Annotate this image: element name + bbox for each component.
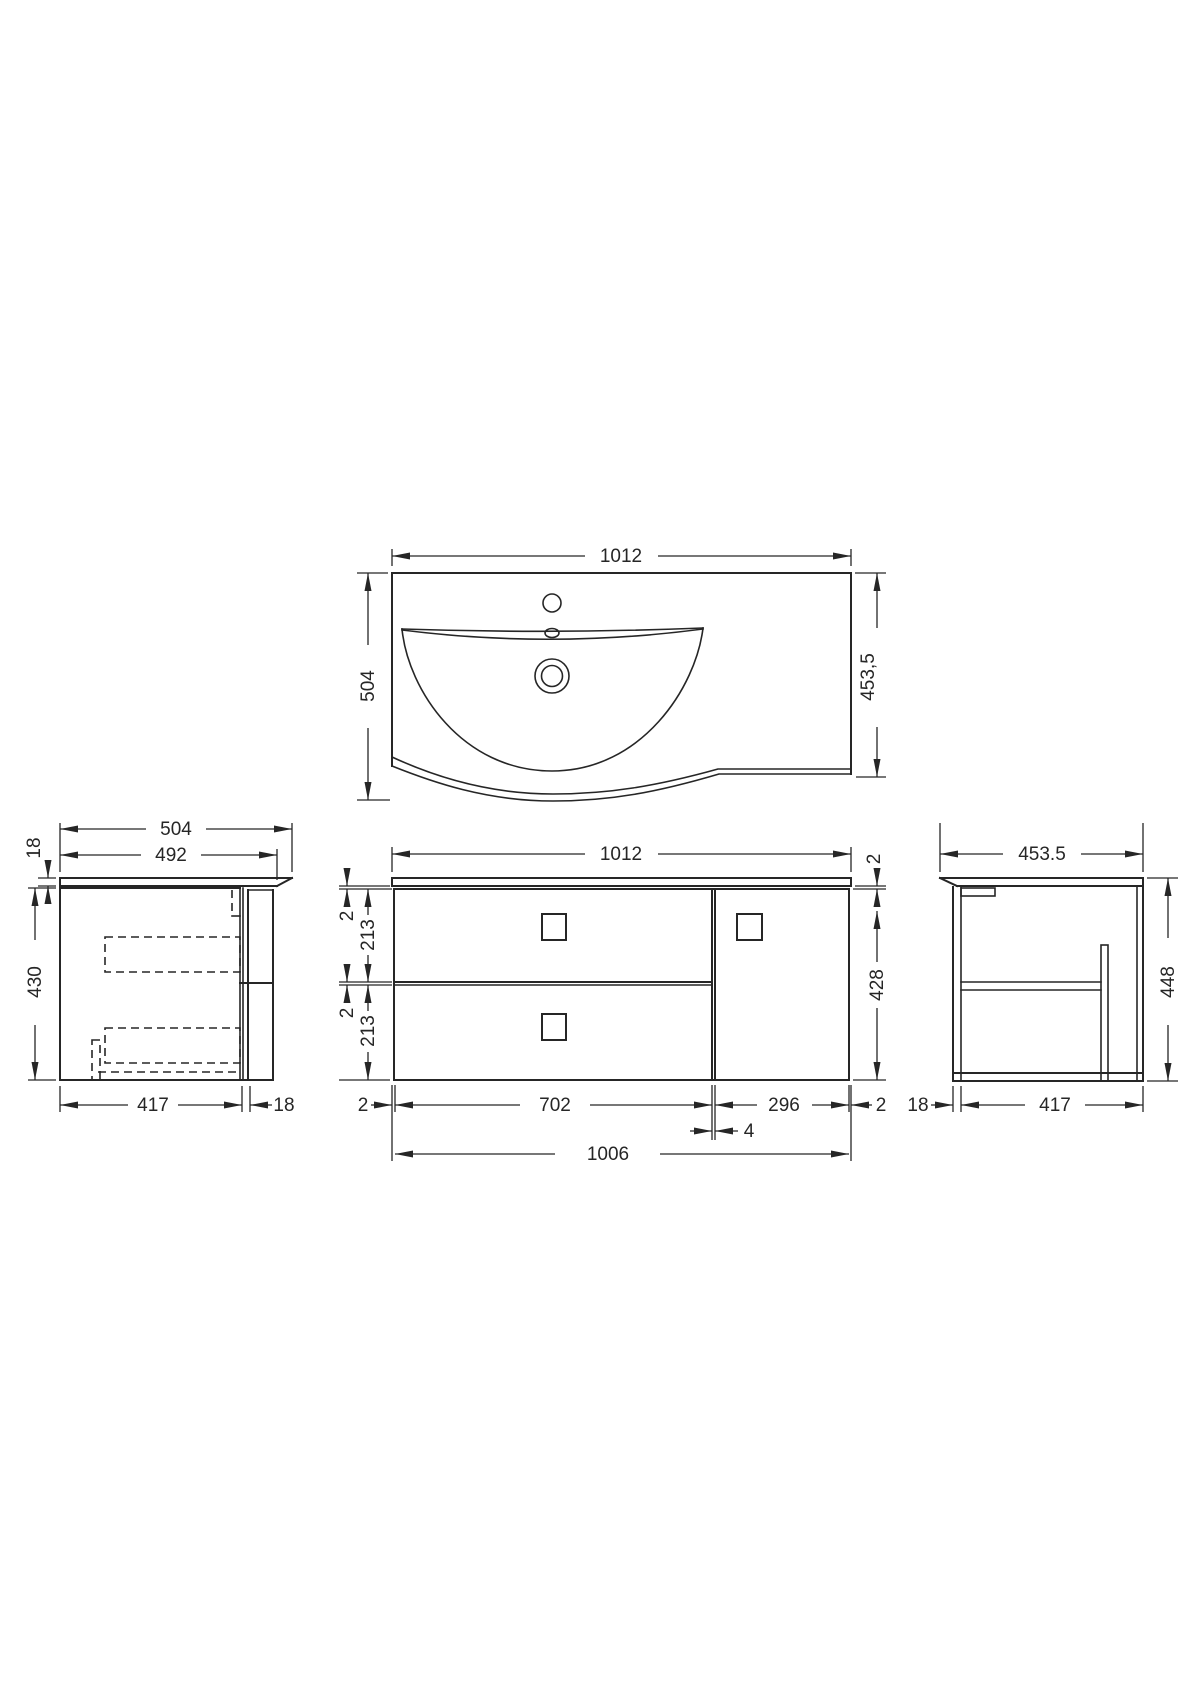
dim-right-cabinet-depth: 417 xyxy=(1039,1095,1071,1116)
top-view-outline xyxy=(392,573,851,801)
countertop xyxy=(392,878,851,886)
top-view-basin xyxy=(402,594,703,771)
drawer1-handle xyxy=(542,914,566,940)
drain-outer-icon xyxy=(535,659,569,693)
faucet-hole-icon xyxy=(543,594,561,612)
dim-left-counter-thickness: 18 xyxy=(24,837,45,858)
dim-front-drawer2-height: 213 xyxy=(358,1015,379,1047)
hidden-drawer-box-top xyxy=(105,937,240,972)
dim-front-cabinet-width: 1006 xyxy=(587,1144,629,1165)
dim-front-side-gap-right: 2 xyxy=(876,1095,887,1116)
dim-left-cabinet-height: 430 xyxy=(25,966,46,998)
dim-front-top-gap: 2 xyxy=(337,911,358,922)
drawer-runner xyxy=(961,888,995,896)
front-view-dimensions: 1012 2 2 213 2 213 428 xyxy=(337,844,888,1165)
dim-front-drawers-width: 702 xyxy=(539,1095,571,1116)
dim-front-cabinet-height: 428 xyxy=(867,969,888,1001)
technical-drawing: 1012 504 453,5 xyxy=(0,0,1200,1698)
front-view-outline xyxy=(392,878,851,1080)
dim-front-counter-width: 1012 xyxy=(600,844,642,865)
dim-top-width: 1012 xyxy=(600,546,642,567)
dim-front-counter-gap-right: 2 xyxy=(864,854,885,865)
interior-panel xyxy=(1101,945,1108,1081)
hidden-bracket xyxy=(92,1040,100,1080)
dim-left-cabinet-depth: 417 xyxy=(137,1095,169,1116)
dim-left-counter-depth: 504 xyxy=(160,819,192,840)
dim-top-depth-right: 453,5 xyxy=(858,653,879,701)
dim-left-front-panel: 18 xyxy=(273,1095,294,1116)
door-handle xyxy=(737,914,762,940)
dim-front-divider-gap: 4 xyxy=(744,1121,755,1142)
dim-right-counter-depth: 453.5 xyxy=(1018,844,1066,865)
drain-inner-icon xyxy=(542,666,563,687)
basin-bowl xyxy=(402,628,703,771)
right-side-view: 453.5 448 18 417 xyxy=(907,823,1179,1116)
front-view: 1012 2 2 213 2 213 428 xyxy=(337,844,888,1165)
dim-front-drawer1-height: 213 xyxy=(358,919,379,951)
drawing-canvas: 1012 504 453,5 xyxy=(0,0,1200,1698)
right-side-outline xyxy=(940,878,1143,1081)
dim-right-total-height: 448 xyxy=(1158,966,1179,998)
hidden-drawer-box-bottom xyxy=(105,1028,240,1063)
drawer2-handle xyxy=(542,1014,566,1040)
dim-front-side-gap-left: 2 xyxy=(358,1095,369,1116)
dim-top-depth-left: 504 xyxy=(358,670,379,702)
left-side-hidden-drawers xyxy=(92,937,240,1080)
top-view: 1012 504 453,5 xyxy=(357,546,886,801)
top-view-dimensions: 1012 504 453,5 xyxy=(357,546,886,800)
dim-front-mid-gap: 2 xyxy=(337,1008,358,1019)
left-side-outline xyxy=(60,878,292,1080)
overflow-hole-icon xyxy=(545,629,559,638)
dim-left-counter-depth-inner: 492 xyxy=(155,845,187,866)
dim-front-door-width: 296 xyxy=(768,1095,800,1116)
left-side-view: 504 492 18 430 417 18 xyxy=(24,819,295,1116)
left-side-dimensions: 504 492 18 430 417 18 xyxy=(24,819,295,1116)
dim-right-front-panel: 18 xyxy=(907,1095,928,1116)
